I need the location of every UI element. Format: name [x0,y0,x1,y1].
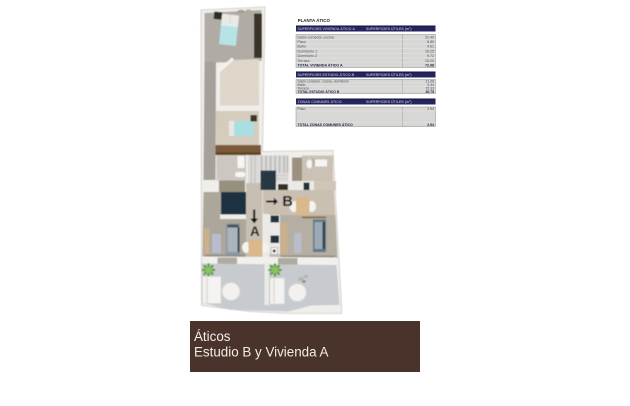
svg-text:2.54: 2.54 [427,107,434,111]
svg-text:9.72: 9.72 [427,54,434,58]
svg-text:TOTAL ESTUDIO ÁTICO B: TOTAL ESTUDIO ÁTICO B [298,89,340,94]
svg-text:15.20: 15.20 [425,59,434,63]
svg-text:15.25: 15.25 [425,49,434,53]
svg-text:TOTAL ZONAS COMUNES ÁTICO: TOTAL ZONAS COMUNES ÁTICO [298,122,354,127]
svg-text:Áticos: Áticos [194,329,231,344]
svg-text:Salón comedor, cocina: Salón comedor, cocina [298,35,334,39]
svg-text:Dormitorio 2: Dormitorio 2 [298,54,318,58]
svg-text:4.61: 4.61 [427,45,434,49]
svg-text:SUPERFICIES VIVIENDA ÁTICO A: SUPERFICIES VIVIENDA ÁTICO A [298,26,356,31]
svg-text:72.98: 72.98 [425,64,434,68]
svg-text:2.54: 2.54 [427,123,434,127]
svg-text:Baño: Baño [298,45,306,49]
svg-text:5.80: 5.80 [427,40,434,44]
svg-text:40.75: 40.75 [426,90,435,94]
svg-text:SUPERFICIES ÚTILES (m²): SUPERFICIES ÚTILES (m²) [366,72,412,77]
svg-text:A: A [250,224,260,239]
svg-text:SUPERFICIES ESTUDIO ÁTICO B: SUPERFICIES ESTUDIO ÁTICO B [298,72,355,77]
svg-text:B: B [282,194,292,210]
svg-text:TOTAL VIVIENDA ÁTICO A: TOTAL VIVIENDA ÁTICO A [298,63,343,68]
svg-text:Estudio B y Vivienda A: Estudio B y Vivienda A [194,345,329,360]
svg-text:22.40: 22.40 [425,35,434,39]
svg-text:Terraza: Terraza [298,59,310,63]
svg-text:SUPERFICIES ÚTILES (m²): SUPERFICIES ÚTILES (m²) [366,99,412,104]
svg-text:Dormitorio 1: Dormitorio 1 [298,49,318,53]
svg-text:Paso: Paso [298,40,306,44]
svg-text:ZONAS COMUNES ÁTICO: ZONAS COMUNES ÁTICO [298,99,342,104]
svg-text:PLANTA ÁTICO: PLANTA ÁTICO [298,18,331,23]
svg-text:Paso: Paso [298,107,306,111]
svg-text:SUPERFICIES ÚTILES (m²): SUPERFICIES ÚTILES (m²) [366,26,412,31]
